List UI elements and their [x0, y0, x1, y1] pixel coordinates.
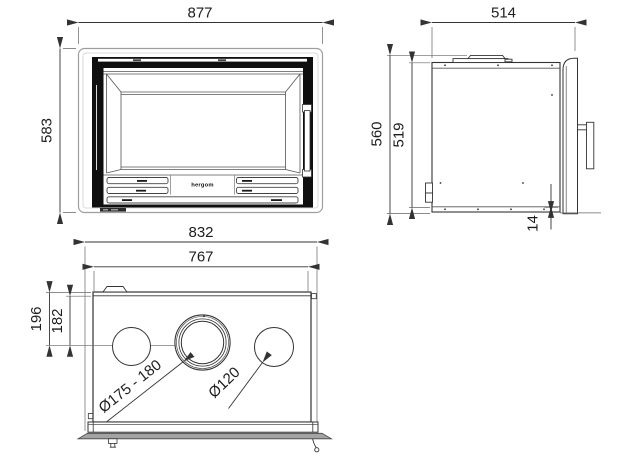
top-right-lug: [312, 294, 317, 299]
side-rear-bracket: [426, 183, 433, 202]
front-latch: [109, 439, 118, 447]
stove-dimension-drawing: 877 583: [0, 0, 624, 460]
rating-plate: [100, 208, 126, 212]
top-inner-depth-label: 182: [49, 308, 66, 333]
top-outer-depth-label: 196: [28, 306, 45, 331]
front-height-label: 583: [39, 118, 56, 143]
front-frame-bar: [88, 422, 318, 432]
side-handle: [578, 122, 594, 169]
dim-front-width: 877: [79, 5, 323, 45]
dim-side-inner-height: 519: [391, 63, 431, 208]
dim-front-height: 583: [39, 49, 77, 213]
dim-side-depth: 514: [432, 5, 575, 59]
front-width-label: 877: [187, 5, 212, 22]
side-body: [432, 63, 560, 213]
top-left-lug: [88, 414, 93, 419]
door-frame-top-gap: [98, 59, 307, 62]
dim-top-inner-width: 767: [94, 249, 308, 292]
side-view: 514 560 519: [369, 5, 602, 232]
brand-logo-text: hergom: [191, 182, 213, 188]
side-outer-height-label: 560: [369, 121, 386, 146]
technical-drawing-page: 877 583: [0, 0, 624, 460]
top-view: 832 767 196 182: [28, 224, 332, 452]
side-top-plate: [453, 55, 512, 62]
side-base-offset-label: 14: [525, 215, 542, 232]
trim-strip: [78, 433, 332, 439]
left-hole: [113, 328, 151, 366]
top-inner-width-label: 767: [188, 249, 213, 266]
outlet-hole: [255, 328, 294, 367]
front-hook: [313, 439, 319, 452]
top-outer-width-label: 832: [188, 224, 213, 241]
side-front-panel: [563, 58, 578, 214]
side-inner-height-label: 519: [391, 122, 408, 147]
top-rear-tab: [103, 287, 127, 293]
side-depth-label: 514: [491, 5, 516, 22]
front-view: 877 583: [39, 5, 323, 213]
